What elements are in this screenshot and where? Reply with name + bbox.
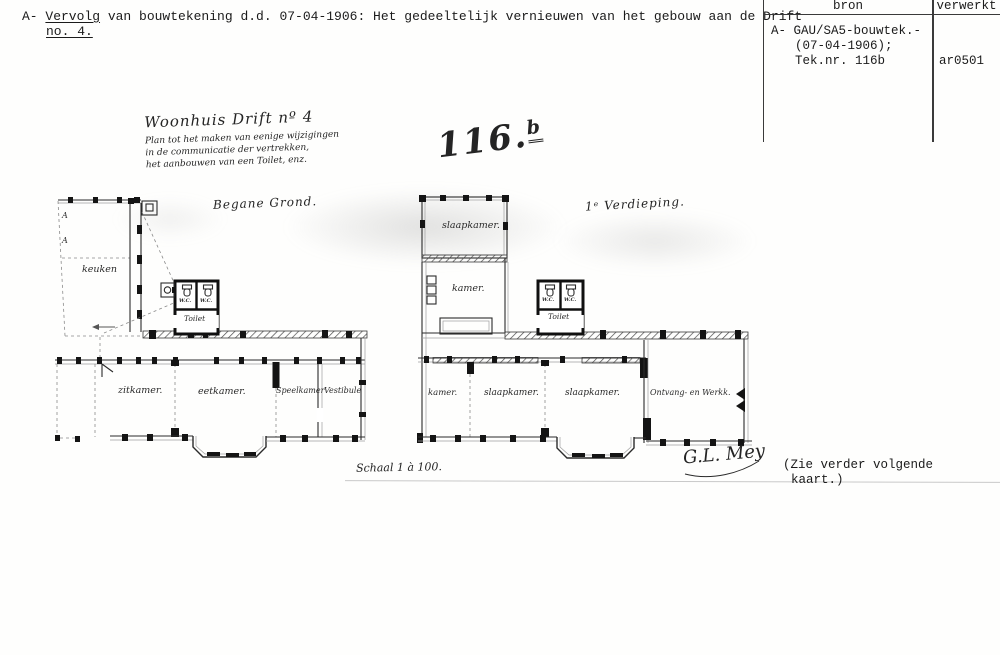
reference-table: bron verwerkt A- GAU/SA5-bouwtek.- (07-0…	[763, 0, 1000, 142]
ground-floor-plan-lines	[58, 197, 367, 360]
room-label-keuken: keuken	[82, 264, 117, 275]
room-label-wc-right-first: W.C.	[564, 297, 576, 303]
first-bay-window	[557, 437, 634, 458]
scanned-archive-sheet: { "header": { "prefix": "A- ", "word_und…	[0, 0, 1000, 655]
scale-note: Schaal 1 à 100.	[356, 460, 442, 474]
ground-bay-window	[193, 436, 266, 457]
room-label-wc-left: W.C.	[179, 298, 191, 304]
section-letter-a1: A	[62, 211, 68, 220]
header-annotation: A- Vervolg van bouwtekening d.d. 07-04-1…	[22, 9, 802, 39]
header-number: no. 4.	[46, 24, 93, 39]
source-line-2: (07-04-1906);	[795, 39, 921, 54]
table-header-source: bron	[764, 0, 932, 13]
header-prefix: A-	[22, 9, 45, 24]
continuation-note-line1: (Zie verder volgende	[783, 458, 933, 473]
continuation-note: (Zie verder volgende kaart.)	[783, 458, 933, 488]
room-label-kamer-row: kamer.	[428, 388, 457, 398]
table-source-cell: A- GAU/SA5-bouwtek.- (07-04-1906); Tek.n…	[771, 24, 921, 69]
room-label-wc-right: W.C.	[200, 298, 212, 304]
first-wc-toilet-block	[536, 281, 584, 334]
room-label-toilet-first: Toilet	[548, 312, 569, 321]
floor-plan-drawing	[40, 180, 760, 480]
room-label-ontvangkamer: Ontvang- en Werkk.	[650, 388, 731, 397]
room-label-eetkamer: eetkamer.	[198, 386, 246, 397]
header-rest: van bouwtekening d.d. 07-04-1906: Het ge…	[100, 9, 802, 24]
room-label-toilet-ground: Toilet	[184, 314, 205, 323]
room-label-wc-left-first: W.C.	[542, 297, 554, 303]
table-header-rule	[764, 14, 1000, 15]
table-column-divider	[932, 0, 934, 142]
sheet-number: 116.b	[435, 114, 545, 167]
room-label-zitkamer: zitkamer.	[118, 385, 162, 396]
sheet-number-sup: b	[525, 115, 543, 143]
table-processed-cell: ar0501	[939, 54, 984, 69]
drawing-title: Woonhuis Drift nº 4	[144, 107, 339, 132]
drawing-title-block: Woonhuis Drift nº 4 Plan tot het maken v…	[144, 107, 340, 171]
source-line-3: Tek.nr. 116b	[795, 54, 921, 69]
ground-wc-toilet-block	[161, 281, 219, 334]
source-line-1: A- GAU/SA5-bouwtek.-	[771, 24, 921, 39]
first-lower-rooms	[417, 339, 752, 458]
room-label-vestibule: Vestibule	[324, 386, 361, 395]
room-label-slaapkamer-row2: slaapkamer.	[565, 388, 620, 398]
header-line-1: A- Vervolg van bouwtekening d.d. 07-04-1…	[22, 9, 802, 24]
room-label-slaapkamer-row1: slaapkamer.	[484, 388, 539, 398]
continuation-note-line2: kaart.)	[791, 473, 933, 488]
ground-lower-rooms	[55, 338, 366, 457]
table-header-processed: verwerkt	[932, 0, 1000, 13]
sheet-number-main: 116	[435, 117, 516, 166]
room-label-speelkamer: Speelkamer	[276, 386, 324, 395]
header-line-2: no. 4.	[46, 24, 802, 39]
section-letter-a2: A	[62, 236, 68, 245]
header-underlined-word: Vervolg	[45, 9, 100, 24]
room-label-slaapkamer-top: slaapkamer.	[442, 220, 500, 231]
room-label-kamer-mid: kamer.	[452, 283, 485, 294]
